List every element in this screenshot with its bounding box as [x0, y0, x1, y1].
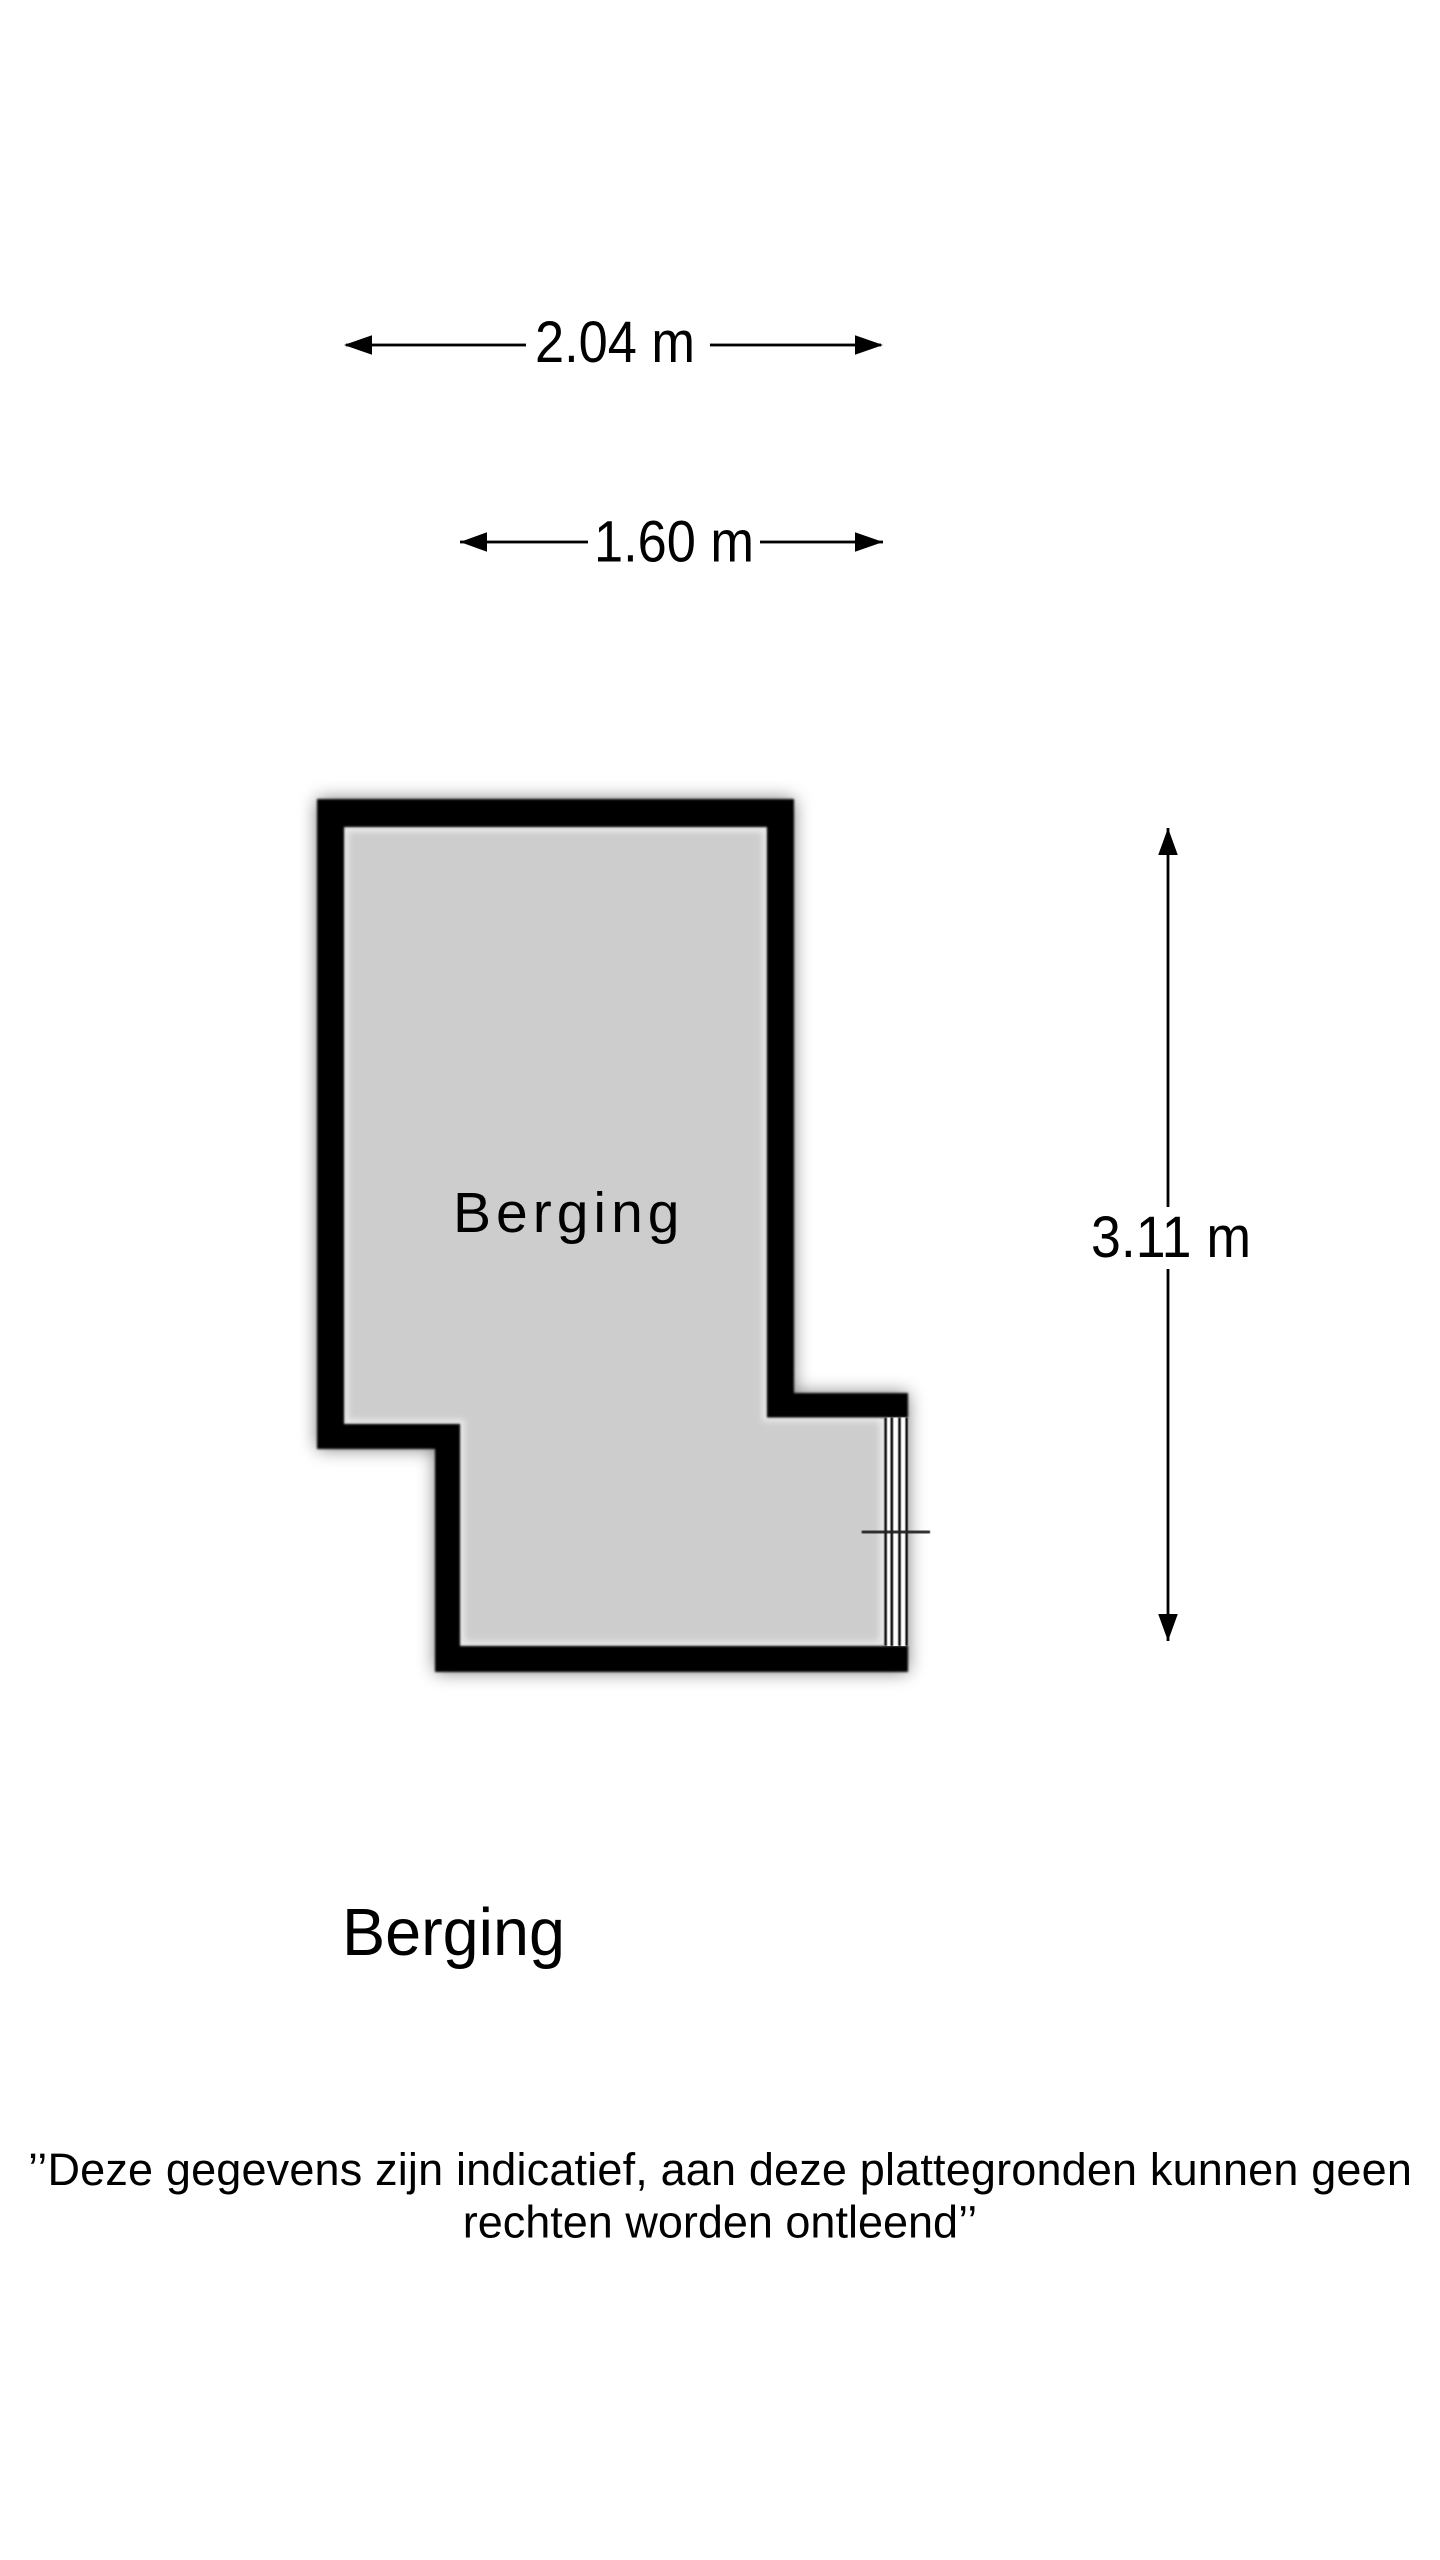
svg-text:Berging: Berging: [342, 1895, 565, 1970]
svg-text:’’Deze gegevens zijn indicatie: ’’Deze gegevens zijn indicatief, aan dez…: [28, 2144, 1412, 2195]
svg-text:2.04 m: 2.04 m: [535, 310, 695, 375]
svg-text:1.60 m: 1.60 m: [594, 510, 754, 575]
svg-text:rechten worden ontleend’’: rechten worden ontleend’’: [463, 2197, 978, 2248]
svg-text:Berging: Berging: [453, 1181, 684, 1245]
svg-text:3.11 m: 3.11 m: [1091, 1205, 1251, 1270]
